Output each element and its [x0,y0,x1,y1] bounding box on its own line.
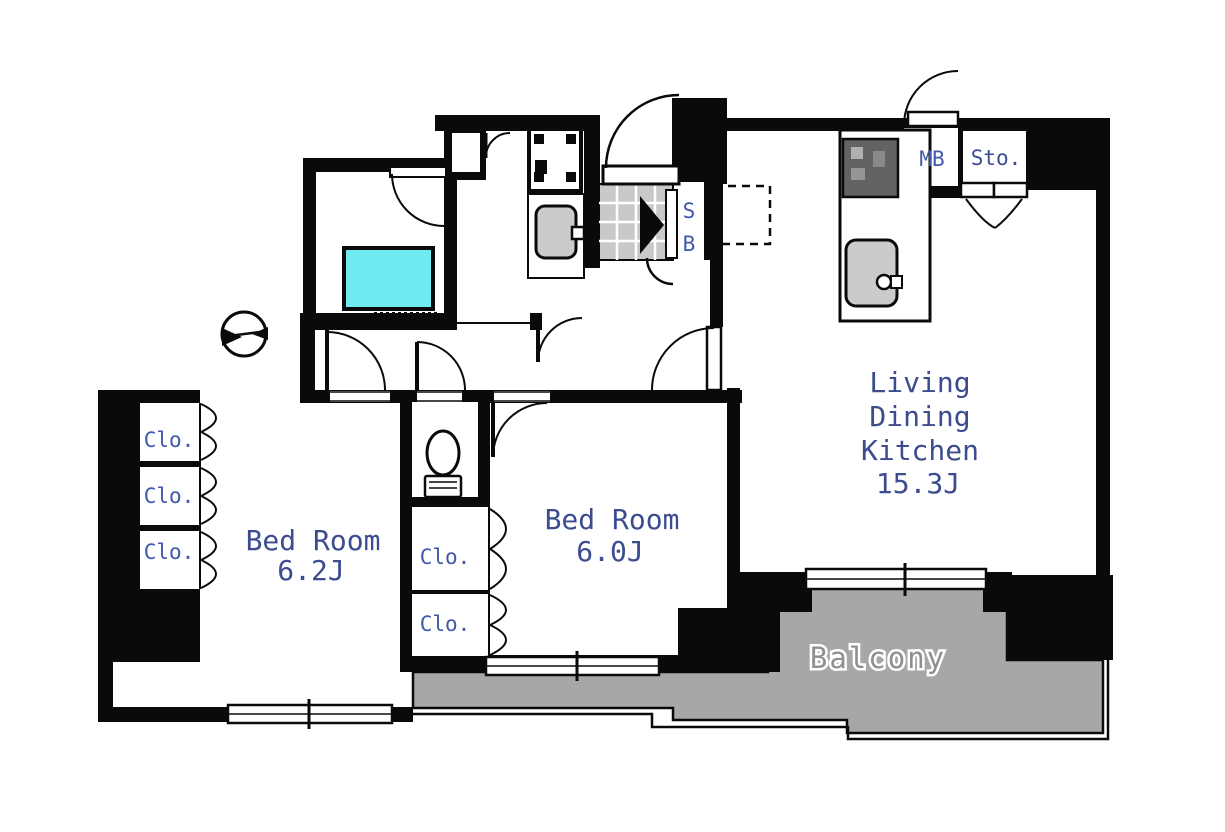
bathroom-door [390,167,446,226]
bedroom2-door [493,403,547,457]
wall [740,572,812,612]
closet-label: Clo. [144,484,195,508]
bathtub [344,248,433,309]
bedroom1-door [327,330,385,390]
entrance-step-arc [647,258,673,284]
threshold-lines [330,323,550,401]
room-label-bedroom1: Bed Room [246,524,381,557]
room-label-ldk-line1: Living [869,366,970,399]
kitchen-faucet [877,275,891,289]
closet-doors-bedroom1 [200,403,216,589]
meter-box-door [904,71,958,126]
entrance-tile [599,184,677,284]
entry-door-frame [666,190,677,258]
entry-door [603,95,679,184]
meter-box-label: MB [919,147,944,171]
closet-label: Clo. [420,612,471,636]
storage-doors [961,183,1027,228]
pipe-space-niche [452,133,480,172]
wall [1096,190,1110,575]
wall [704,182,723,260]
shoe-box-label-s: S [683,199,696,223]
washroom-door [538,318,582,362]
ps-hatch-door [486,133,510,158]
wall [300,313,457,330]
kitchen-counter [840,130,930,321]
window-bedroom1 [228,699,392,729]
wall [98,390,113,722]
room-label-balcony: Balcony [810,641,946,675]
shoe-box-label-b: B [683,232,696,256]
room-label-ldk-line3: Kitchen [861,434,979,467]
washing-machine [529,129,581,191]
wall [710,258,723,327]
toilet-door [417,342,465,390]
wall [303,158,316,325]
room-label-ldk-size: 15.3J [876,467,960,500]
kitchen-sink [846,240,897,306]
wall [300,313,315,403]
room-label-bedroom2-size: 6.0J [576,535,643,568]
storage-label: Sto. [971,146,1022,170]
wall [983,572,1012,612]
wall [1007,575,1113,660]
room-label-bedroom2: Bed Room [545,503,680,536]
ldk-door [652,327,721,390]
closet-doors-bedroom2 [489,508,506,656]
room-label-ldk-line2: Dining [869,400,970,433]
key-cylinder-symbol [221,312,268,356]
wall [1026,118,1110,190]
toilet [425,431,461,497]
wall [727,388,740,610]
closet-label: Clo. [144,428,195,452]
floor-plan: Living Dining Kitchen 15.3J Bed Room 6.2… [0,0,1225,832]
room-label-bedroom1-size: 6.2J [277,554,344,587]
wall [678,608,780,672]
vanity-sink [528,194,584,278]
wall [584,131,600,268]
closet-label: Clo. [144,540,195,564]
closet-label: Clo. [420,545,471,569]
